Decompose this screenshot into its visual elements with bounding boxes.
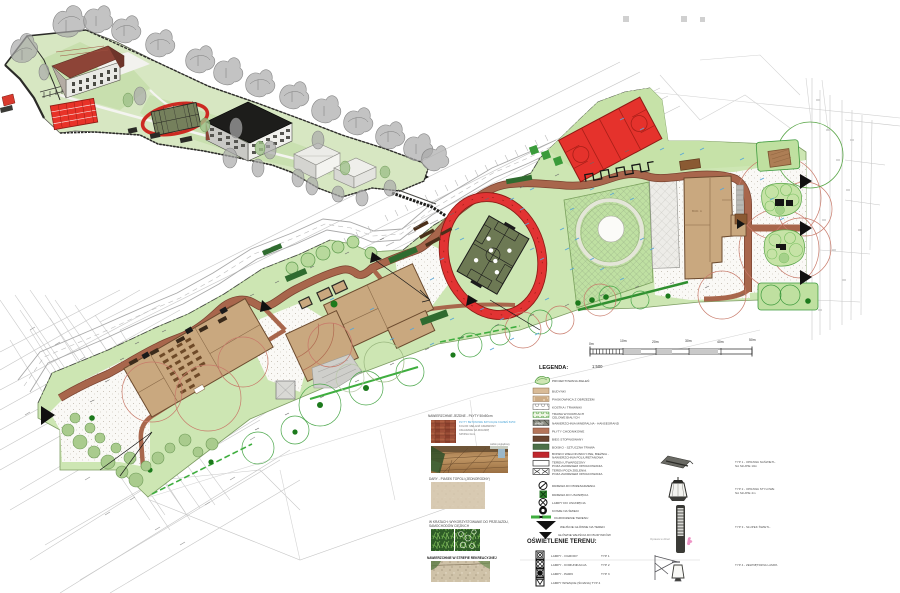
svg-text:SPOINA 3mm: SPOINA 3mm bbox=[459, 432, 475, 436]
svg-text:TYP 4 - ZEWNĘTRZNA LAMPA: TYP 4 - ZEWNĘTRZNA LAMPA bbox=[735, 563, 777, 567]
svg-text:50m: 50m bbox=[749, 338, 756, 342]
svg-text:Oprawa w dzień: Oprawa w dzień bbox=[650, 537, 670, 541]
svg-text:POZA ZAKRESEM OPRACOWANIA: POZA ZAKRESEM OPRACOWANIA bbox=[552, 472, 603, 476]
svg-text:LAMPY DO USUNIĘCIA: LAMPY DO USUNIĘCIA bbox=[552, 501, 587, 505]
svg-text:NA SŁUPIE 10m: NA SŁUPIE 10m bbox=[735, 464, 758, 468]
svg-text:30m: 30m bbox=[685, 339, 692, 343]
svg-text:10m: 10m bbox=[620, 339, 627, 343]
svg-text:LAMPY - PARKI: LAMPY - PARKI bbox=[551, 572, 573, 576]
svg-text:KOSTKA / TRAWNIKI: KOSTKA / TRAWNIKI bbox=[552, 406, 582, 410]
svg-text:PŁYTY CHODNIKOWE: PŁYTY CHODNIKOWE bbox=[552, 430, 584, 434]
svg-text:DRZEWA DO USUNIĘCIA: DRZEWA DO USUNIĘCIA bbox=[552, 493, 589, 497]
svg-text:WEJŚCIE GŁÓWNE NA TEREN: WEJŚCIE GŁÓWNE NA TEREN bbox=[560, 524, 605, 529]
svg-text:CELOWE BIAŁYCH: CELOWE BIAŁYCH bbox=[552, 416, 580, 420]
svg-text:DRZEWA DO PRZESADZENIA: DRZEWA DO PRZESADZENIA bbox=[552, 484, 596, 488]
svg-text:OŚWIETLENIE TERENU:: OŚWIETLENIE TERENU: bbox=[527, 538, 597, 545]
svg-text:20m: 20m bbox=[652, 340, 659, 344]
svg-text:LEGENDA:: LEGENDA: bbox=[539, 365, 568, 371]
svg-text:PROJEKTOWANA ZIELEŃ: PROJEKTOWANA ZIELEŃ bbox=[552, 379, 589, 383]
svg-text:TYP 3: TYP 3 bbox=[601, 572, 610, 576]
svg-text:BOISKO - SZTUCZNA TRAWA: BOISKO - SZTUCZNA TRAWA bbox=[552, 446, 596, 450]
svg-text:LAMPY WISZĄCE (ŚCIANA) TYP 4: LAMPY WISZĄCE (ŚCIANA) TYP 4 bbox=[551, 580, 600, 585]
svg-text:0m: 0m bbox=[589, 342, 594, 346]
svg-text:BUD. A: BUD. A bbox=[692, 209, 702, 213]
svg-text:PŁYTY BETONOWE IMITUJĄCE KAMIE: PŁYTY BETONOWE IMITUJĄCE KAMIEŃ 50/50 bbox=[459, 420, 516, 424]
svg-text:DARY - PIASEK TOPOLI (JEDNOROD: DARY - PIASEK TOPOLI (JEDNORODNY) bbox=[429, 477, 490, 481]
svg-text:1:500: 1:500 bbox=[592, 364, 603, 369]
svg-text:40m: 40m bbox=[717, 340, 724, 344]
svg-text:POZA ZAKRESEM OPRACOWANIA: POZA ZAKRESEM OPRACOWANIA bbox=[552, 464, 603, 468]
svg-text:KOSZE NA ŚMIECI: KOSZE NA ŚMIECI bbox=[552, 508, 579, 513]
svg-text:HANS: HANS bbox=[535, 422, 544, 426]
svg-text:LAMPY - OGRODY: LAMPY - OGRODY bbox=[551, 554, 578, 558]
svg-text:SAMOCHODÓW CIĘŻKICH: SAMOCHODÓW CIĘŻKICH bbox=[429, 523, 470, 528]
svg-text:OGRODZENIE TERENU: OGRODZENIE TERENU bbox=[554, 516, 588, 520]
svg-text:TYP 3 - SŁUPEK ŚWIETL.: TYP 3 - SŁUPEK ŚWIETL. bbox=[735, 524, 771, 529]
svg-text:NAWIERZCHNIA MINERALNA - HANSE: NAWIERZCHNIA MINERALNA - HANSEGRAND bbox=[552, 422, 620, 426]
svg-text:BUDYNKI: BUDYNKI bbox=[552, 390, 566, 394]
svg-text:PIASKOWNICA Z OBRZEŻEM: PIASKOWNICA Z OBRZEŻEM bbox=[552, 397, 595, 402]
svg-text:LAMPY - KOMUNIKACJA: LAMPY - KOMUNIKACJA bbox=[551, 563, 587, 567]
svg-text:GŁÓWNE WEJŚCIA DO BUDYNKÓW: GŁÓWNE WEJŚCIA DO BUDYNKÓW bbox=[558, 532, 611, 537]
svg-text:widok poglądowy: widok poglądowy bbox=[490, 442, 510, 446]
svg-text:NAWIERZCHNIE W STREFIE REKREAC: NAWIERZCHNIE W STREFIE REKREACYJNEJ bbox=[427, 556, 497, 560]
svg-text:UKŁADANE NA MIJANKĘ: UKŁADANE NA MIJANKĘ bbox=[459, 428, 489, 432]
svg-text:NAWIERZCHNIE JEZDNE - PŁYTY 50: NAWIERZCHNIE JEZDNE - PŁYTY 50x50cm bbox=[428, 414, 493, 418]
svg-text:NAWIERZCHNIA POLIURETANOWA: NAWIERZCHNIA POLIURETANOWA bbox=[552, 456, 604, 460]
svg-text:TYP 1: TYP 1 bbox=[601, 554, 610, 558]
svg-text:TYP 2: TYP 2 bbox=[601, 563, 610, 567]
svg-text:NA SŁUPIE 4m: NA SŁUPIE 4m bbox=[735, 491, 756, 495]
svg-text:BIEG STOPNIOWANY: BIEG STOPNIOWANY bbox=[552, 438, 583, 442]
